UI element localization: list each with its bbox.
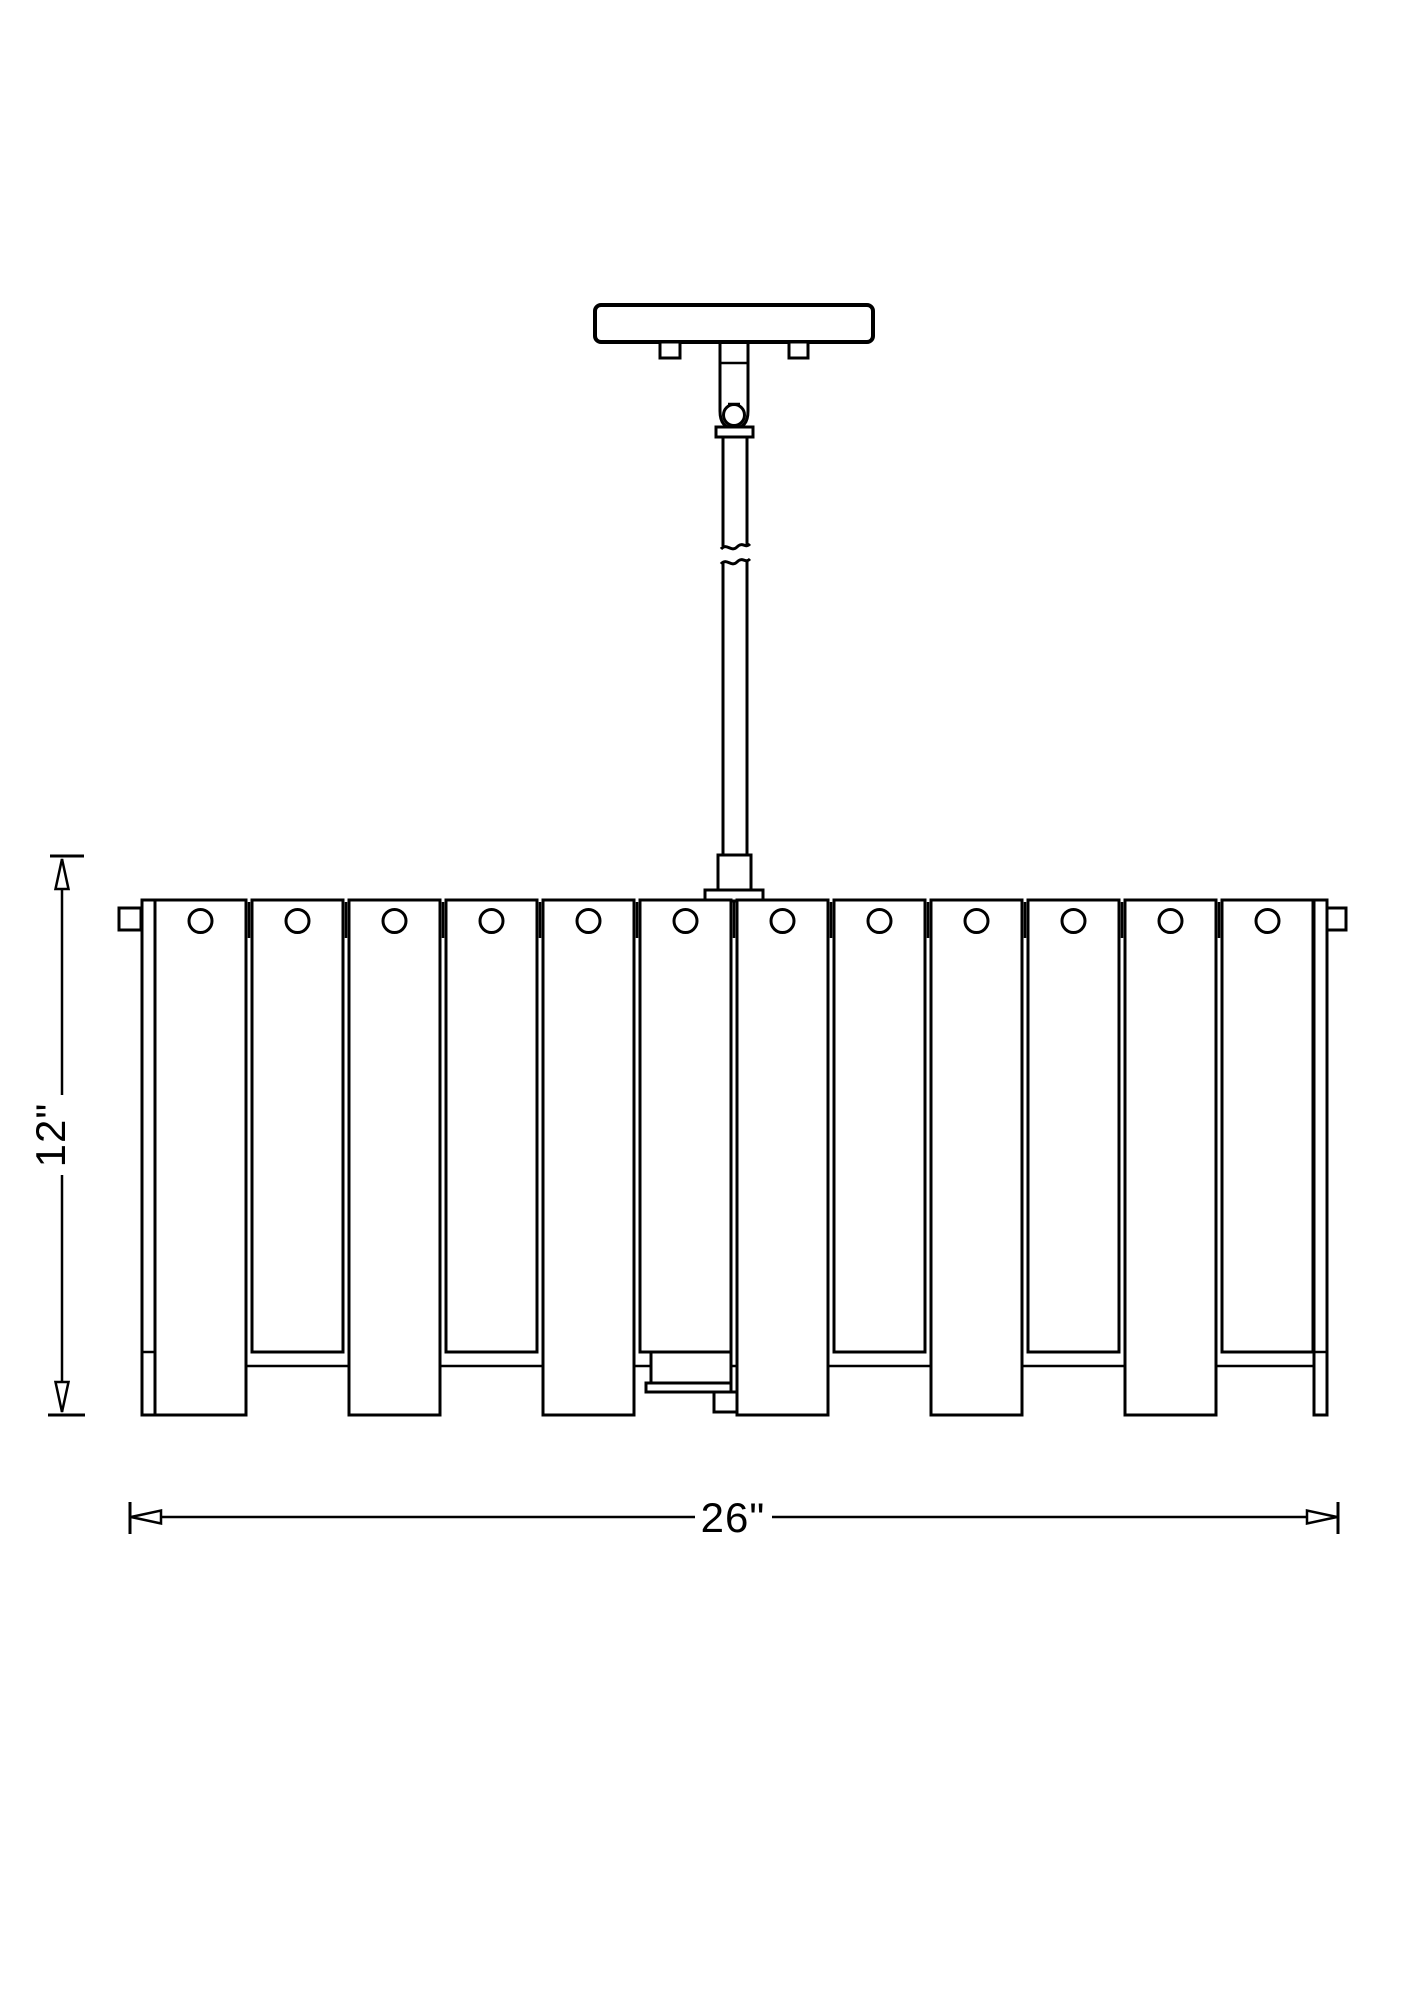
shade-slat-short — [640, 900, 731, 1352]
rod-coupler — [718, 855, 751, 892]
slat-hole — [771, 910, 794, 933]
end-strip-right — [1314, 900, 1327, 1415]
chandelier-dimension-drawing: 12" 26" — [0, 0, 1414, 2000]
end-strip-left — [142, 900, 155, 1415]
shade-slat-short — [252, 900, 343, 1352]
width-dimension: 26" — [130, 1494, 1338, 1541]
shade-slat-long — [931, 900, 1022, 1415]
slat-hole — [1062, 910, 1085, 933]
arrowhead-down-icon — [56, 1382, 69, 1412]
swivel-ball — [724, 405, 745, 426]
width-dimension-label: 26" — [701, 1494, 766, 1541]
shade-slat-short — [1028, 900, 1119, 1352]
canopy-screw-right — [789, 342, 808, 358]
slat-hole — [868, 910, 891, 933]
shade-side-tab-right — [1326, 908, 1346, 930]
shade-slat-long — [1125, 900, 1216, 1415]
arrowhead-up-icon — [56, 859, 69, 889]
height-dimension: 12" — [27, 856, 85, 1415]
interior-plate — [651, 1352, 731, 1383]
interior-socket-tab — [714, 1392, 737, 1412]
slat-hole — [577, 910, 600, 933]
slat-hole — [286, 910, 309, 933]
slat-hole — [965, 910, 988, 933]
slat-hole — [674, 910, 697, 933]
canopy-screw-left — [660, 342, 680, 358]
shade-slat-long — [155, 900, 246, 1415]
slat-hole — [480, 910, 503, 933]
shade-side-tab-left — [119, 908, 141, 930]
shade-slat-long — [349, 900, 440, 1415]
interior-bottom-bracket — [646, 1352, 737, 1412]
slat-hole — [383, 910, 406, 933]
shade-slat-short — [834, 900, 925, 1352]
downrod-assembly — [705, 342, 763, 901]
shade-slat-short — [446, 900, 537, 1352]
canopy-plate — [595, 305, 873, 342]
ceiling-canopy — [595, 305, 873, 358]
shade-slat-long — [737, 900, 828, 1415]
shade-slats — [155, 900, 1314, 1415]
swivel-collar — [716, 427, 753, 437]
drawing-sheet: 12" 26" — [0, 0, 1414, 2000]
slat-hole — [1159, 910, 1182, 933]
arrowhead-right-icon — [1307, 1511, 1337, 1524]
height-dimension-label: 12" — [27, 1103, 74, 1168]
slat-hole — [189, 910, 212, 933]
drum-shade — [119, 900, 1346, 1415]
shade-slat-long — [543, 900, 634, 1415]
rod-break-upper — [721, 544, 750, 549]
arrowhead-left-icon — [131, 1511, 161, 1524]
shade-slat-short — [1222, 900, 1313, 1352]
slat-hole — [1256, 910, 1279, 933]
